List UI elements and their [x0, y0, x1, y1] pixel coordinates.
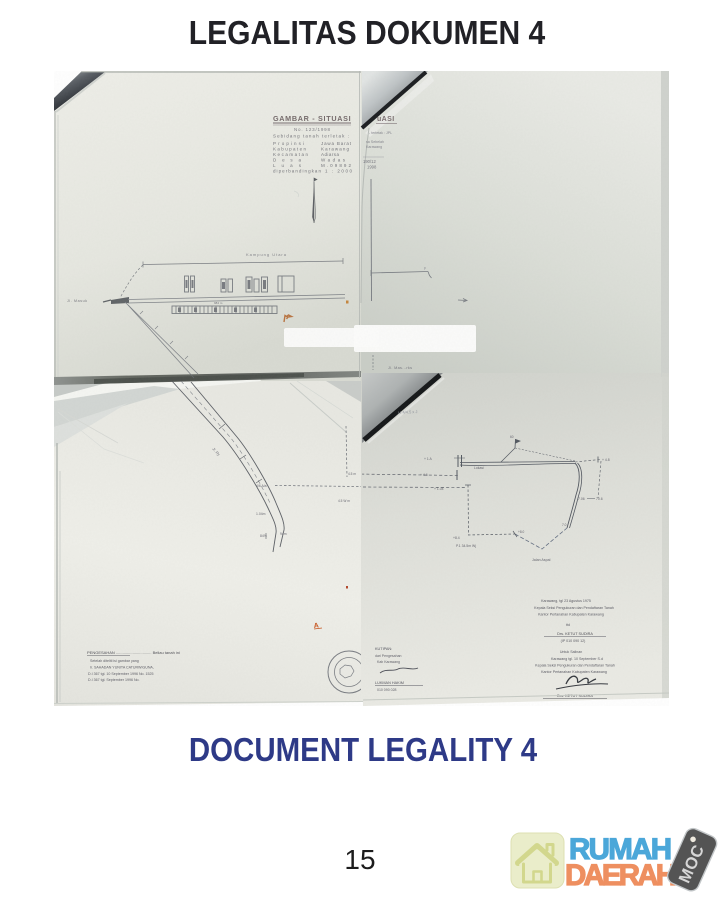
- svg-text:DAERAH: DAERAH: [565, 859, 677, 892]
